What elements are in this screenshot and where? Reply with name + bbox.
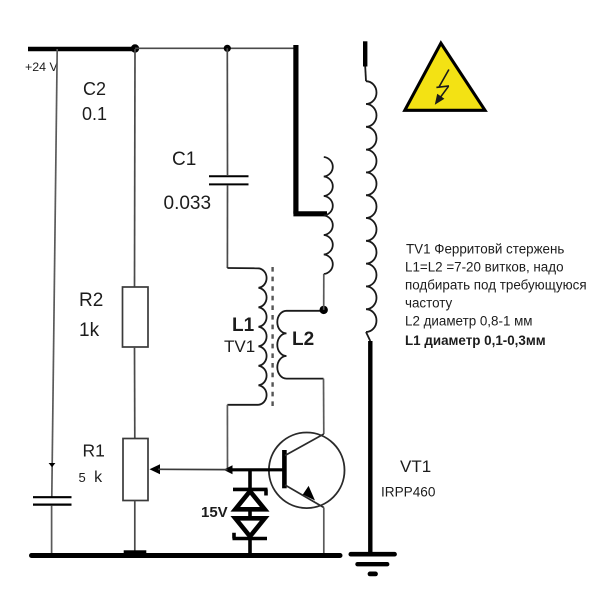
- svg-text:частоту: частоту: [405, 296, 453, 311]
- svg-text:0.033: 0.033: [164, 193, 212, 214]
- svg-text:L1 диаметр 0,1-0,3мм: L1 диаметр 0,1-0,3мм: [405, 333, 546, 348]
- svg-text:C2: C2: [83, 79, 106, 99]
- svg-text:L2: L2: [292, 329, 314, 350]
- svg-text:L1=L2 =7-20 витков, надо: L1=L2 =7-20 витков, надо: [405, 260, 564, 275]
- svg-text:L2 диаметр 0,8-1 мм: L2 диаметр 0,8-1 мм: [405, 314, 533, 329]
- svg-text:15V: 15V: [201, 504, 228, 521]
- svg-text:R2: R2: [79, 290, 103, 311]
- svg-text:TV1: TV1: [224, 337, 255, 356]
- svg-text:VT1: VT1: [400, 457, 431, 476]
- svg-text:L1: L1: [232, 315, 255, 336]
- svg-text:0.1: 0.1: [82, 104, 107, 124]
- svg-text:подбирать под требующуюся: подбирать под требующуюся: [405, 278, 587, 293]
- svg-text:C1: C1: [172, 149, 196, 170]
- svg-text:IRPP460: IRPP460: [381, 485, 436, 500]
- svg-text:TV1 Ферритовй стержень: TV1 Ферритовй стержень: [406, 242, 564, 257]
- svg-text:1k: 1k: [79, 320, 100, 341]
- svg-text:5 k: 5 k: [79, 469, 104, 486]
- svg-text:+24 V: +24 V: [25, 60, 58, 74]
- svg-text:R1: R1: [83, 441, 105, 461]
